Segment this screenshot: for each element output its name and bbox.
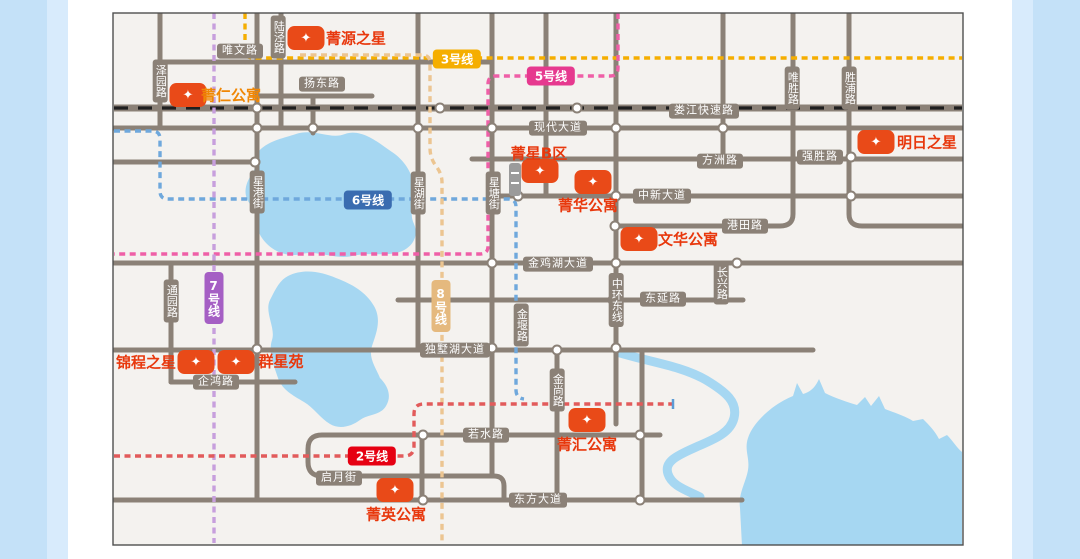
road-label-现代大道: 现代大道 — [529, 121, 587, 136]
road-label-港田路: 港田路 — [722, 219, 768, 234]
road-node — [436, 104, 445, 113]
road-label-金尚路: 金尚路 — [550, 369, 565, 412]
property-label-jinghui: 菁汇公寓 — [557, 434, 617, 455]
road-node — [419, 431, 428, 440]
road-node — [488, 124, 497, 133]
line-3-badge[interactable]: 3号线 — [433, 50, 481, 69]
road-label-独墅湖大道: 独墅湖大道 — [420, 343, 490, 358]
star-icon: ✦ — [390, 483, 401, 498]
property-label-jinghua: 菁华公寓 — [558, 195, 618, 216]
star-icon: ✦ — [231, 355, 242, 370]
road-label-星塘街: 星塘街 — [486, 172, 501, 215]
property-label-jingren: 菁仁公寓 — [201, 85, 261, 106]
road-label-中环东线: 中环东线 — [609, 273, 624, 327]
road-label-东方大道: 东方大道 — [509, 493, 567, 508]
property-marker-jingying[interactable]: ✦ — [377, 478, 414, 502]
property-marker-jingyuan[interactable]: ✦ — [288, 26, 325, 50]
road-label-泽园路: 泽园路 — [153, 60, 168, 103]
property-label-qunxing: 群星苑 — [258, 351, 303, 372]
building-icon — [509, 163, 521, 196]
star-icon: ✦ — [183, 88, 194, 103]
road-node — [612, 124, 621, 133]
property-label-jingxingbq: 菁星B区 — [511, 143, 567, 164]
road-label-娄江快速路: 娄江快速路 — [669, 104, 739, 119]
road-node — [847, 153, 856, 162]
road-label-星湖街: 星湖街 — [411, 172, 426, 215]
property-marker-jinghui[interactable]: ✦ — [569, 408, 606, 432]
line-8-badge[interactable]: 8号线 — [432, 280, 451, 332]
star-icon: ✦ — [301, 31, 312, 46]
road-node — [612, 259, 621, 268]
property-label-wenhua: 文华公寓 — [658, 229, 718, 250]
property-label-jingyuan: 菁源之星 — [326, 28, 386, 49]
property-label-jingying: 菁英公寓 — [366, 504, 426, 525]
road-label-东延路: 东延路 — [640, 292, 686, 307]
road-label-星港街: 星港街 — [250, 171, 265, 214]
road-label-中新大道: 中新大道 — [633, 189, 691, 204]
road-label-扬东路: 扬东路 — [299, 77, 345, 92]
road-node — [253, 124, 262, 133]
road-node — [611, 222, 620, 231]
road-node — [719, 124, 728, 133]
road-label-启月街: 启月街 — [316, 471, 362, 486]
road-node — [612, 344, 621, 353]
road-node — [573, 104, 582, 113]
line-7-badge[interactable]: 7号线 — [205, 272, 224, 324]
road-node — [488, 259, 497, 268]
star-icon: ✦ — [634, 232, 645, 247]
property-marker-qunxing[interactable]: ✦ — [218, 350, 255, 374]
road-node — [636, 431, 645, 440]
road-label-方洲路: 方洲路 — [697, 154, 743, 169]
road-node — [309, 124, 318, 133]
property-marker-wenhua[interactable]: ✦ — [621, 227, 658, 251]
road-label-陆泾路: 陆泾路 — [271, 16, 286, 59]
star-icon: ✦ — [191, 355, 202, 370]
road-node — [636, 496, 645, 505]
map-page: 唯文路扬东路娄江快速路现代大道方洲路强胜路中新大道港田路金鸡湖大道东延路独墅湖大… — [0, 0, 1080, 559]
road-node — [251, 158, 260, 167]
road-label-若水路: 若水路 — [463, 428, 509, 443]
property-label-mingri: 明日之星 — [897, 132, 957, 153]
road-node — [414, 124, 423, 133]
road-node — [847, 192, 856, 201]
road-label-胜浦路: 胜浦路 — [842, 67, 857, 110]
property-label-jincheng: 锦程之星 — [116, 352, 176, 373]
road-label-通园路: 通园路 — [164, 280, 179, 323]
property-marker-mingri[interactable]: ✦ — [858, 130, 895, 154]
road-label-强胜路: 强胜路 — [797, 150, 843, 165]
star-icon: ✦ — [582, 413, 593, 428]
road-label-金鸡湖大道: 金鸡湖大道 — [523, 257, 593, 272]
line-6-badge[interactable]: 6号线 — [344, 191, 392, 210]
road-label-长兴路: 长兴路 — [714, 262, 729, 305]
property-marker-jinghua[interactable]: ✦ — [575, 170, 612, 194]
road-node — [733, 259, 742, 268]
road-label-金堰路: 金堰路 — [514, 304, 529, 347]
road-label-企鸿路: 企鸿路 — [193, 375, 239, 390]
line-5-badge[interactable]: 5号线 — [527, 67, 575, 86]
line-2-badge[interactable]: 2号线 — [348, 447, 396, 466]
road-label-唯胜路: 唯胜路 — [785, 67, 800, 110]
star-icon: ✦ — [588, 175, 599, 190]
star-icon: ✦ — [871, 135, 882, 150]
road-label-唯文路: 唯文路 — [217, 44, 263, 59]
road-node — [553, 346, 562, 355]
star-icon: ✦ — [535, 164, 546, 179]
property-marker-jincheng[interactable]: ✦ — [178, 350, 215, 374]
